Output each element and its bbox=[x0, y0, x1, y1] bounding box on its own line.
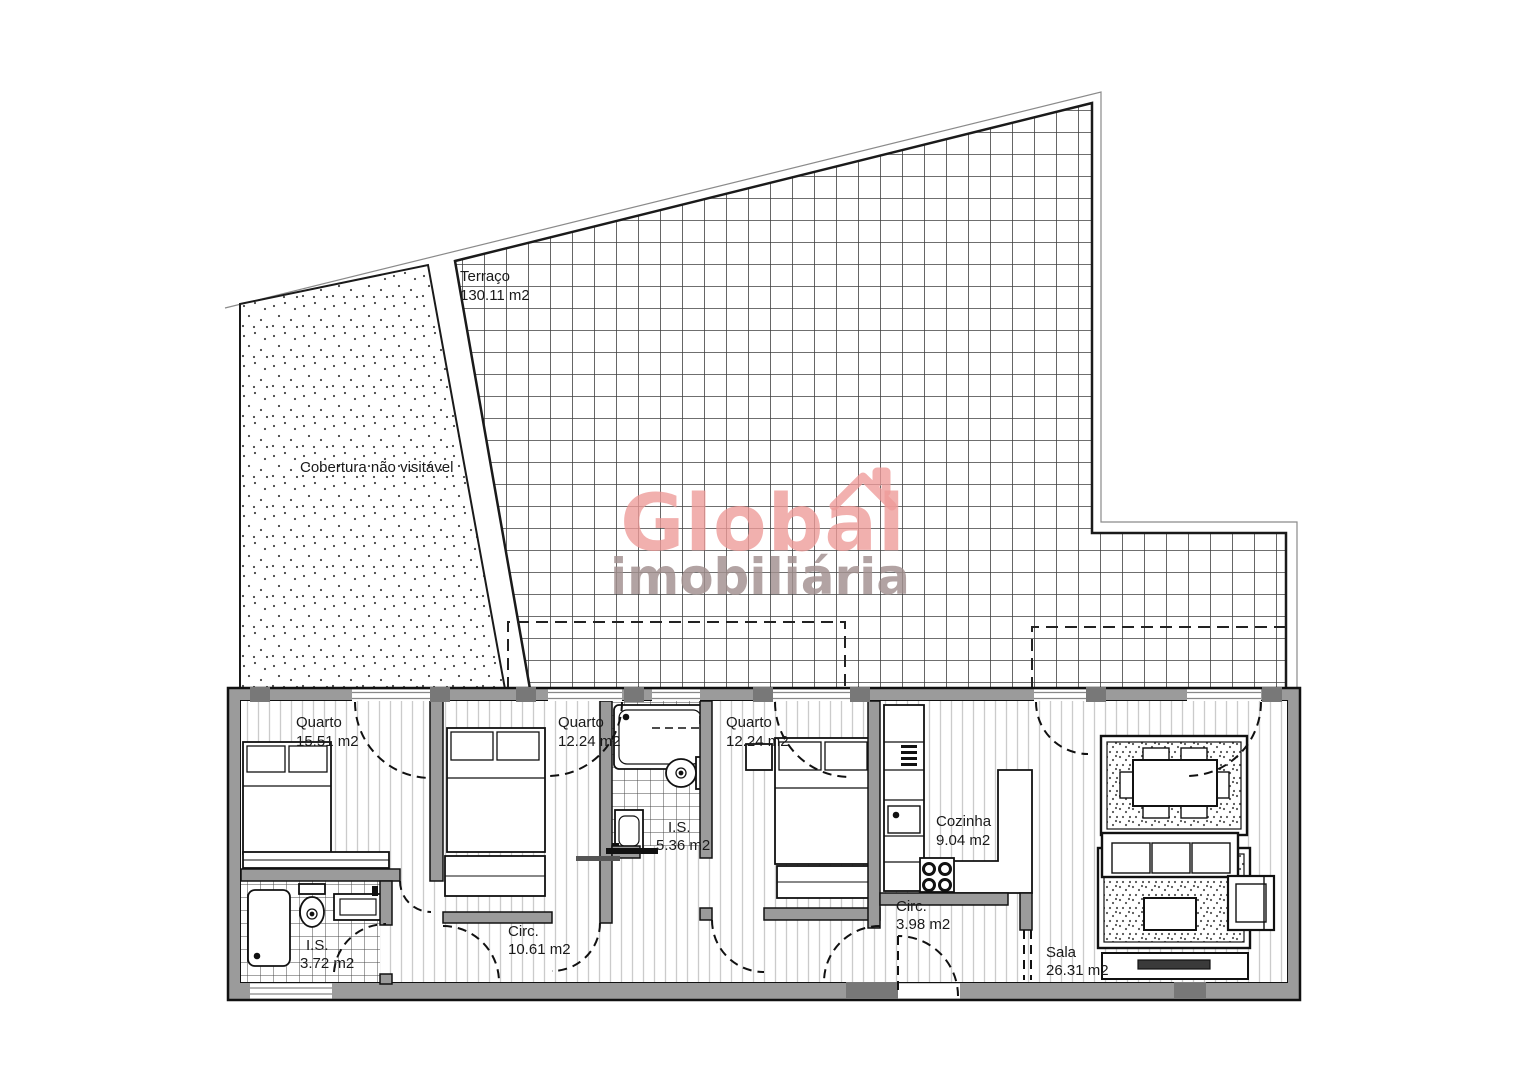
label-sala-area: 26.31 m2 bbox=[1046, 962, 1109, 979]
wardrobe-3 bbox=[777, 866, 872, 898]
wall-is2-right-lower bbox=[380, 974, 392, 984]
toilet-2 bbox=[299, 884, 325, 927]
wall-q2-bottom bbox=[443, 912, 552, 923]
watermark-subtitle: imobiliária bbox=[610, 548, 910, 606]
sliding-door-is1-b bbox=[576, 856, 620, 861]
label-quarto3-name: Quarto bbox=[726, 714, 772, 731]
shower-tray bbox=[248, 890, 290, 966]
tv-icon bbox=[1138, 960, 1210, 969]
label-quarto3-area: 12.24 m2 bbox=[726, 733, 789, 750]
wall-is1-q3 bbox=[700, 701, 712, 858]
label-is2-name: I.S. bbox=[306, 937, 329, 954]
wardrobe-2 bbox=[445, 856, 545, 896]
label-cozinha-area: 9.04 m2 bbox=[936, 832, 990, 849]
label-quarto1-area: 15.51 m2 bbox=[296, 733, 359, 750]
wall-is2-right-upper bbox=[380, 881, 392, 925]
label-cobertura: Cobertura não visitável bbox=[300, 459, 453, 476]
kitchen-counter-left bbox=[884, 705, 924, 891]
label-sala-name: Sala bbox=[1046, 944, 1077, 961]
wall-q3-cozinha bbox=[868, 701, 880, 928]
wall-q1-bottom bbox=[241, 869, 400, 881]
tv-stand bbox=[1102, 953, 1248, 979]
wall-q3-bottom-left bbox=[700, 908, 712, 920]
wall-q3-bottom bbox=[764, 908, 880, 920]
roof-stipple-area bbox=[240, 265, 505, 689]
label-is1-area: 5.36 m2 bbox=[656, 837, 710, 854]
wardrobe-1 bbox=[243, 852, 389, 868]
floor-plan-drawing: Terraço 130.11 m2 Cobertura não visitáve… bbox=[0, 0, 1528, 1080]
double-bed-2 bbox=[447, 728, 545, 852]
watermark: Global imobiliária bbox=[610, 472, 910, 606]
label-terraco-name: Terraço bbox=[460, 268, 510, 285]
label-circ1-area: 10.61 m2 bbox=[508, 941, 571, 958]
label-cozinha-name: Cozinha bbox=[936, 813, 992, 830]
label-quarto1-name: Quarto bbox=[296, 714, 342, 731]
coffee-table bbox=[1144, 898, 1196, 930]
label-circ2-area: 3.98 m2 bbox=[896, 916, 950, 933]
sofa bbox=[1102, 833, 1238, 877]
double-bed-1 bbox=[243, 742, 331, 854]
floor-plan-page: Terraço 130.11 m2 Cobertura não visitáve… bbox=[0, 0, 1528, 1080]
bathtub bbox=[614, 705, 706, 769]
is2-window bbox=[250, 984, 332, 999]
entrance-door-opening bbox=[898, 984, 960, 999]
label-is2-area: 3.72 m2 bbox=[300, 955, 354, 972]
armchair bbox=[1228, 876, 1274, 930]
label-quarto2-area: 12.24 m2 bbox=[558, 733, 621, 750]
double-bed-3 bbox=[775, 738, 872, 864]
sink-1 bbox=[611, 810, 643, 850]
label-quarto2-name: Quarto bbox=[558, 714, 604, 731]
label-circ2-name: Circ. bbox=[896, 898, 927, 915]
sliding-door-is1-a bbox=[606, 848, 658, 854]
wall-circ2-sala-stub bbox=[1020, 893, 1032, 930]
wall-q1-q2 bbox=[430, 701, 443, 881]
label-terraco-area: 130.11 m2 bbox=[460, 287, 530, 304]
label-is1-name: I.S. bbox=[668, 819, 691, 836]
label-circ1-name: Circ. bbox=[508, 923, 539, 940]
stove bbox=[920, 858, 954, 892]
